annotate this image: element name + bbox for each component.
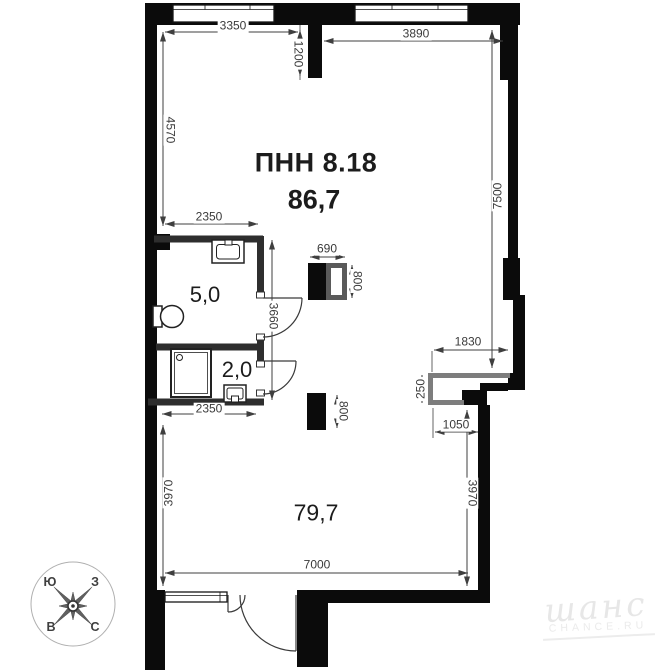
dim-3350: 3350 <box>218 20 249 33</box>
dim-1830: 1830 <box>453 336 484 349</box>
dim-1200: 1200 <box>292 39 305 70</box>
dim-2350-top: 2350 <box>194 211 225 224</box>
door-entrance-leaf-small <box>228 595 245 612</box>
dim-800-bottom: 800 <box>337 399 350 423</box>
dim-250: 250 <box>415 377 428 401</box>
window-bottom <box>165 592 227 602</box>
dim-800-top: 800 <box>351 269 364 293</box>
dim-3970-right: 3970 <box>466 478 479 509</box>
dim-690: 690 <box>315 243 339 256</box>
doors <box>228 298 302 651</box>
shaft-column-void <box>331 268 342 295</box>
compass-letter-east: В <box>46 620 55 634</box>
dim-3660: 3660 <box>267 301 280 332</box>
shower-tray <box>171 349 211 397</box>
dim-2350-bottom: 2350 <box>194 403 225 416</box>
compass-letter-west: З <box>91 575 99 589</box>
unit-title: ПНН 8.18 <box>255 148 377 179</box>
dim-7000: 7000 <box>302 559 333 572</box>
sink-laundry <box>224 385 246 402</box>
room-area-bathroom: 5,0 <box>190 282 221 308</box>
toilet <box>153 306 184 328</box>
compass-letter-north: С <box>90 620 99 634</box>
dim-3890: 3890 <box>401 28 432 41</box>
room-area-laundry: 2,0 <box>222 357 253 383</box>
dim-1050: 1050 <box>441 419 472 432</box>
dim-7500: 7500 <box>492 181 505 212</box>
dim-4570: 4570 <box>164 115 177 146</box>
sink-bathroom <box>212 240 244 263</box>
room-area-living: 79,7 <box>294 500 339 527</box>
dim-3970-left: 3970 <box>163 478 176 509</box>
door-entrance-leaf-large <box>240 595 296 651</box>
floor-plan-drawing <box>0 0 670 670</box>
door-laundry <box>263 361 296 394</box>
window-top-right <box>355 5 468 22</box>
shaft-column-black <box>308 263 326 300</box>
compass-letter-south: Ю <box>44 575 57 589</box>
unit-total-area: 86,7 <box>288 185 341 216</box>
floor-plan: ПНН 8.18 86,7 5,0 2,0 79,7 3350 1200 389… <box>0 0 670 670</box>
lower-column <box>307 393 326 430</box>
